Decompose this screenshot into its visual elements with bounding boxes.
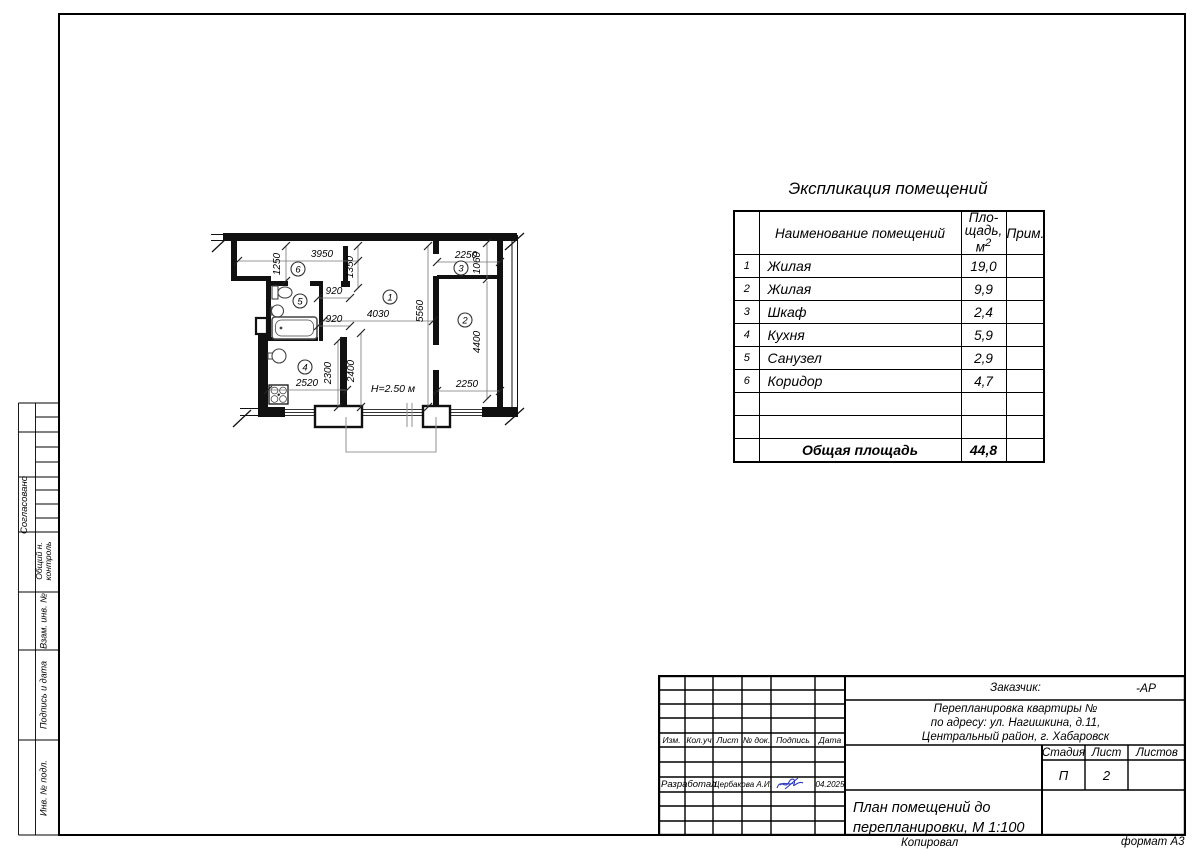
developed-name: Щербакова А.И. (713, 777, 771, 792)
table-row: 2Жилая9,9 (734, 278, 1044, 301)
stage-label: Стадия (1042, 745, 1085, 760)
dim-3950: 3950 (311, 249, 334, 260)
dim-920-top: 920 (326, 286, 343, 297)
svg-text:3: 3 (458, 264, 464, 275)
sheets-value (1128, 760, 1186, 790)
svg-text:6: 6 (295, 265, 301, 276)
col-koluch: Кол.уч (685, 733, 713, 747)
room-marker-3: 3 (454, 261, 468, 275)
room-marker-1: 1 (383, 290, 397, 304)
dim-4400: 4400 (472, 330, 483, 353)
kitchen-sink (272, 349, 286, 363)
dim-2250-bottom: 2250 (455, 379, 479, 390)
explication-header-row: Наименование помещений Пло- щадь, м2 При… (734, 211, 1044, 255)
col-izm: Изм. (658, 733, 685, 747)
svg-text:1: 1 (387, 293, 392, 304)
duct-shaft (256, 318, 267, 334)
dim-1060: 1060 (472, 251, 483, 274)
dim-920-bottom: 920 (326, 314, 343, 325)
stage-value: П (1042, 760, 1085, 790)
svg-text:4: 4 (302, 363, 307, 374)
strip-label-soglasovano: Согласовано (19, 476, 30, 534)
header-name: Наименование помещений (759, 211, 961, 255)
customer-label: Заказчик: (990, 682, 1041, 694)
explication-title: Экспликация помещений (733, 179, 1043, 199)
table-row (734, 393, 1044, 416)
project-code: -АР (1136, 681, 1156, 695)
header-note: Прим. (1006, 211, 1044, 255)
dim-2400: 2400 (346, 359, 357, 383)
strip-label-inv: Инв. № подл. (39, 760, 49, 816)
drawing-sheet: { "explication": { "title": "Экспликация… (0, 0, 1200, 849)
dim-1350: 1350 (345, 255, 356, 278)
total-row: Общая площадь44,8 (734, 439, 1044, 462)
sheet-value: 2 (1085, 760, 1128, 790)
toilet-tank (272, 286, 278, 299)
kopiroval-label: Копировал (901, 837, 958, 849)
toilet-bowl (278, 287, 292, 298)
col-data: Дата (815, 733, 845, 747)
col-podpis: Подпись (771, 733, 815, 747)
developed-date: 04.2025 (815, 777, 845, 792)
project-line-3: Центральный район, г. Хабаровск (845, 730, 1186, 744)
room-marker-4: 4 (298, 360, 312, 374)
developed-role: Разработал (661, 779, 713, 790)
customer-row: Заказчик: -АР (845, 675, 1186, 700)
total-area-value: 44,8 (961, 439, 1006, 462)
strip-label-vzam: Взам. инв. № (39, 593, 49, 649)
sheets-label: Листов (1128, 745, 1186, 760)
project-description: Перепланировка квартиры № по адресу: ул.… (845, 702, 1186, 744)
sheet-label: Лист (1085, 745, 1128, 760)
room-marker-6: 6 (291, 262, 305, 276)
table-row: 6Коридор4,7 (734, 370, 1044, 393)
ceiling-height-note: Н=2.50 м (371, 383, 415, 395)
format-label: формат А3 (1121, 836, 1185, 848)
document-title-line-2: перепланировки, М 1:100 (853, 818, 1038, 838)
strip-label-obshiy-2: контроль (43, 542, 53, 581)
dim-2300: 2300 (323, 361, 334, 385)
table-row: 4Кухня5,9 (734, 324, 1044, 347)
dim-2520: 2520 (295, 378, 319, 389)
project-line-2: по адресу: ул. Нагишкина, д.11, (845, 716, 1186, 730)
table-row (734, 416, 1044, 439)
table-row: 3Шкаф2,4 (734, 301, 1044, 324)
col-ndok: № док. (742, 733, 771, 747)
header-num (734, 211, 759, 255)
room-marker-5: 5 (293, 294, 307, 308)
header-area: Пло- щадь, м2 (961, 211, 1006, 255)
svg-text:2: 2 (461, 316, 468, 327)
bathtub-drain (280, 327, 283, 330)
developed-signature (771, 775, 815, 794)
col-list: Лист (713, 733, 742, 747)
document-title-line-1: План помещений до (853, 798, 1038, 818)
wash-basin (272, 305, 284, 317)
strip-label-podpis: Подпись и дата (39, 661, 49, 729)
side-attribute-strip: Согласовано Общий н. контроль Взам. инв.… (14, 398, 60, 838)
table-row: 1Жилая19,0 (734, 255, 1044, 278)
project-line-1: Перепланировка квартиры № (845, 702, 1186, 716)
floor-plan: 3950 1250 1350 920 920 4030 5560 2250 10… (200, 210, 540, 470)
table-row: 5Санузел2,9 (734, 347, 1044, 370)
svg-text:5: 5 (297, 297, 303, 308)
dim-5560: 5560 (415, 299, 426, 322)
dim-4030: 4030 (367, 309, 390, 320)
room-marker-2: 2 (458, 313, 472, 327)
explication-table: Наименование помещений Пло- щадь, м2 При… (733, 210, 1045, 463)
total-label: Общая площадь (759, 439, 961, 462)
document-title: План помещений до перепланировки, М 1:10… (853, 798, 1038, 838)
dim-1250: 1250 (272, 252, 283, 275)
